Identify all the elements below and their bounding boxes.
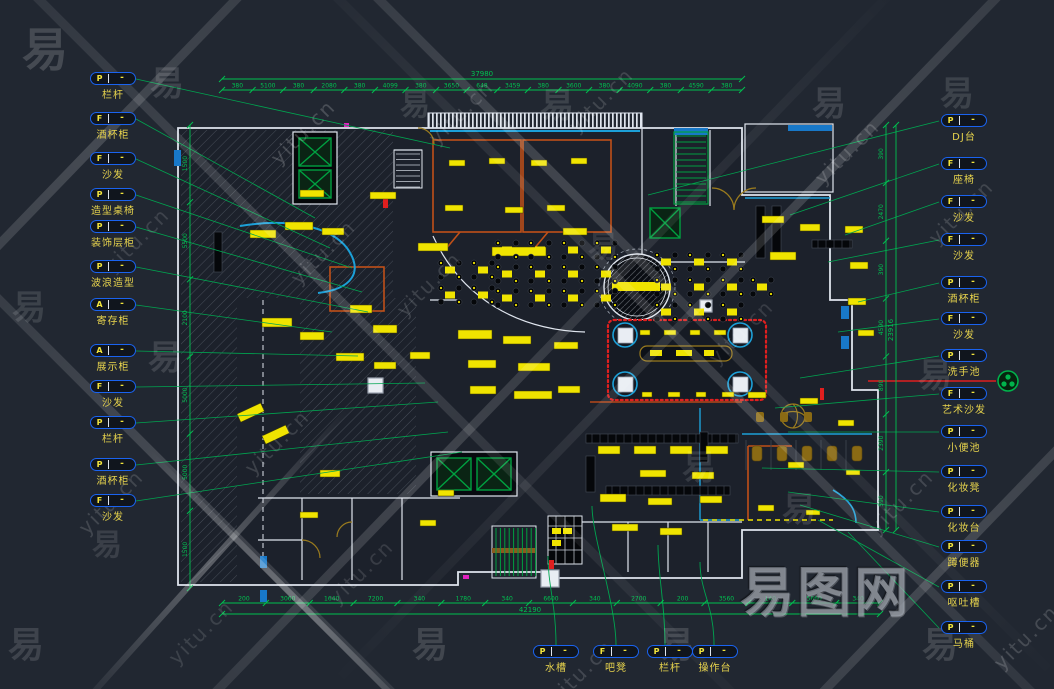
callout-letter: P — [91, 74, 108, 84]
callout-value: - — [960, 314, 986, 323]
dimension-text: 3650 — [444, 83, 459, 90]
callout-letter: P — [942, 278, 959, 288]
callout: F-座椅 — [941, 157, 1001, 186]
callout-label: 座椅 — [941, 171, 987, 186]
dimension-text: 890 — [878, 379, 885, 391]
dimension-text: 4090 — [627, 83, 642, 90]
callout-label: 酒杯柜 — [941, 290, 987, 305]
callout-label: 吧凳 — [593, 659, 639, 674]
callout-letter: F — [594, 647, 611, 657]
dimension-text: 380 — [354, 83, 366, 90]
callout-value: - — [666, 647, 692, 656]
dimension-text: 390 — [878, 148, 885, 160]
callout-letter: P — [942, 467, 959, 477]
callout-label: 化妆台 — [941, 519, 987, 534]
callout-value: - — [960, 235, 986, 244]
callout-letter: P — [91, 262, 108, 272]
dimension-text: 7200 — [368, 596, 383, 603]
callout-letter: F — [91, 496, 108, 506]
callout-label: 栏杆 — [90, 430, 136, 445]
callout-value: - — [960, 507, 986, 516]
callout-label: 马桶 — [941, 635, 987, 650]
callout-label: 展示柜 — [90, 358, 136, 373]
callout-value: - — [109, 154, 135, 163]
dimension-text: 1500 — [182, 156, 189, 171]
callout-letter: P — [91, 222, 108, 232]
callout-value: - — [960, 623, 986, 632]
callout-letter: P — [942, 427, 959, 437]
callout-letter: A — [91, 300, 108, 310]
callout-label: 化妆凳 — [941, 479, 987, 494]
dimension-text: 5100 — [260, 83, 275, 90]
callout-tag: P- — [692, 645, 738, 658]
callout-tag: F- — [941, 387, 987, 400]
callout-value: - — [109, 496, 135, 505]
callout-label: 洗手池 — [941, 363, 987, 378]
callout: F-沙发 — [941, 312, 1001, 341]
callout: P-化妆台 — [941, 505, 1001, 534]
callout: P-栏杆 — [90, 416, 150, 445]
callout-value: - — [960, 467, 986, 476]
dimension-text: 590 — [878, 495, 885, 507]
callout-label: 沙发 — [90, 166, 136, 181]
callout: A-展示柜 — [90, 344, 150, 373]
callout-letter: F — [91, 154, 108, 164]
callout-tag: F- — [593, 645, 639, 658]
callout-tag: P- — [941, 540, 987, 553]
callout-tag: F- — [90, 112, 136, 125]
dimension-text: 340 — [501, 596, 513, 603]
callout: P-蹲便器 — [941, 540, 1001, 569]
callout-label: 操作台 — [692, 659, 738, 674]
service-shaft — [548, 516, 582, 564]
callout-label: 酒杯柜 — [90, 126, 136, 141]
callout-tag: F- — [90, 152, 136, 165]
dimension-text: 3560 — [719, 596, 734, 603]
dimension-text: 380 — [293, 83, 305, 90]
callout-letter: P — [942, 582, 959, 592]
callout-letter: F — [942, 389, 959, 399]
callout-tag: P- — [90, 416, 136, 429]
vip-zone — [608, 320, 766, 400]
callout-label: 波浪造型 — [90, 274, 136, 289]
dimension-text: 380 — [537, 83, 549, 90]
callout-value: - — [960, 278, 986, 287]
callout-label: 蹲便器 — [941, 554, 987, 569]
watermark-logo: 易图网 — [740, 548, 911, 627]
callout-letter: P — [91, 418, 108, 428]
callout: F-沙发 — [941, 195, 1001, 224]
dimension-text: 4590 — [688, 83, 703, 90]
callout-value: - — [109, 74, 135, 83]
dimension-text: 5000 — [182, 387, 189, 402]
callout-letter: P — [693, 647, 710, 657]
callout-value: - — [960, 116, 986, 125]
callout-value: - — [109, 460, 135, 469]
callout-tag: P- — [90, 260, 136, 273]
callout-label: 沙发 — [90, 394, 136, 409]
callout-tag: F- — [941, 312, 987, 325]
callout-letter: P — [648, 647, 665, 657]
callout: F-沙发 — [90, 152, 150, 181]
callout-value: - — [109, 190, 135, 199]
callout-letter: P — [942, 116, 959, 126]
callout: P-酒杯柜 — [941, 276, 1001, 305]
callout-value: - — [109, 346, 135, 355]
building-shell — [178, 113, 878, 585]
callout: A-寄存柜 — [90, 298, 150, 327]
callout-value: - — [960, 542, 986, 551]
dimension-text: 2390 — [878, 435, 885, 450]
callout-tag: F- — [90, 380, 136, 393]
callout-letter: P — [91, 460, 108, 470]
callout: P-DJ台 — [941, 114, 1001, 143]
callout-label: 栏杆 — [647, 659, 693, 674]
callout-letter: A — [91, 346, 108, 356]
callout-tag: P- — [941, 505, 987, 518]
dimension-text: 340 — [414, 596, 426, 603]
callout-tag: A- — [90, 298, 136, 311]
dimension-text: 380 — [660, 83, 672, 90]
callout-letter: P — [942, 351, 959, 361]
dimension-text: 5500 — [182, 233, 189, 248]
callout-letter: F — [942, 235, 959, 245]
dimension-text: 5000 — [182, 464, 189, 479]
callout: F-沙发 — [90, 380, 150, 409]
callout-tag: F- — [90, 494, 136, 507]
dimension-text: 3459 — [505, 83, 520, 90]
callout-value: - — [960, 197, 986, 206]
callout-value: - — [960, 427, 986, 436]
dimension-overall: 42190 — [519, 606, 541, 614]
callout: P-洗手池 — [941, 349, 1001, 378]
callout-letter: P — [942, 542, 959, 552]
dimension-text: 648 — [476, 83, 488, 90]
callout-value: - — [109, 300, 135, 309]
callout-tag: P- — [90, 188, 136, 201]
dimension-text: 390 — [878, 264, 885, 276]
callout: P-酒杯柜 — [90, 458, 150, 487]
dimension-text: 2080 — [321, 83, 336, 90]
dimension-text: 380 — [721, 83, 733, 90]
dimension-text: 1640 — [324, 596, 339, 603]
callout-letter: P — [534, 647, 551, 657]
dimension-text: 2470 — [878, 204, 885, 219]
callout-value: - — [960, 159, 986, 168]
callout: F-沙发 — [941, 233, 1001, 262]
dimension-text: 4099 — [383, 83, 398, 90]
callout-tag: P- — [941, 425, 987, 438]
callout-tag: P- — [90, 220, 136, 233]
callout-letter: P — [91, 190, 108, 200]
callout-tag: P- — [941, 465, 987, 478]
callout-letter: F — [91, 382, 108, 392]
callout-letter: P — [942, 623, 959, 633]
callout: P-波浪造型 — [90, 260, 150, 289]
hatched-area — [181, 130, 393, 298]
dimension-overall: 23916 — [887, 318, 895, 341]
callout-label: 造型桌椅 — [90, 202, 136, 217]
callout-letter: F — [942, 314, 959, 324]
callout-tag: F- — [941, 157, 987, 170]
callout: P-马桶 — [941, 621, 1001, 650]
callout-tag: P- — [90, 458, 136, 471]
dimension-text: 380 — [599, 83, 611, 90]
callout: P-装饰层柜 — [90, 220, 150, 249]
callout-value: - — [109, 222, 135, 231]
callout-tag: P- — [941, 114, 987, 127]
callout: F-艺术沙发 — [941, 387, 1001, 416]
callout-label: 装饰层柜 — [90, 234, 136, 249]
callout: P-操作台 — [692, 645, 752, 674]
callout-value: - — [109, 418, 135, 427]
callout: P-水槽 — [533, 645, 593, 674]
detail-marker-icon — [998, 371, 1018, 391]
callout-value: - — [109, 262, 135, 271]
callout-letter: F — [942, 197, 959, 207]
callout-label: 沙发 — [941, 326, 987, 341]
dimension-text: 2700 — [631, 596, 646, 603]
callout: P-化妆凳 — [941, 465, 1001, 494]
callout: F-酒杯柜 — [90, 112, 150, 141]
callout-tag: F- — [941, 233, 987, 246]
callout-label: DJ台 — [941, 128, 987, 143]
dimension-text: 3600 — [566, 83, 581, 90]
callout-value: - — [960, 351, 986, 360]
dimension-text: 1780 — [456, 596, 471, 603]
callout-value: - — [109, 382, 135, 391]
callout-letter: F — [942, 159, 959, 169]
dimension-text: 340 — [589, 596, 601, 603]
dimension-overall: 37980 — [471, 70, 493, 78]
callout-value: - — [109, 114, 135, 123]
callout-value: - — [612, 647, 638, 656]
callout-label: 沙发 — [90, 508, 136, 523]
callout-label: 呕吐槽 — [941, 594, 987, 609]
callout-letter: P — [942, 507, 959, 517]
callout-label: 栏杆 — [90, 86, 136, 101]
dimension-text: 380 — [232, 83, 244, 90]
callout-value: - — [711, 647, 737, 656]
callout-label: 寄存柜 — [90, 312, 136, 327]
callout-label: 水槽 — [533, 659, 579, 674]
callout-tag: P- — [647, 645, 693, 658]
callout-label: 小便池 — [941, 439, 987, 454]
callout-tag: P- — [941, 621, 987, 634]
callout-tag: P- — [941, 580, 987, 593]
stage-wall-hatch — [428, 113, 642, 128]
dimension-text: 1500 — [182, 542, 189, 557]
callout: F-吧凳 — [593, 645, 653, 674]
callout-label: 酒杯柜 — [90, 472, 136, 487]
callout-label: 沙发 — [941, 247, 987, 262]
callout: P-呕吐槽 — [941, 580, 1001, 609]
callout-tag: A- — [90, 344, 136, 357]
callout-letter: F — [91, 114, 108, 124]
callout: P-栏杆 — [90, 72, 150, 101]
dimension-text: 4590 — [878, 320, 885, 335]
callout-label: 艺术沙发 — [941, 401, 987, 416]
callout-tag: P- — [941, 276, 987, 289]
callout-value: - — [960, 582, 986, 591]
callout-tag: P- — [533, 645, 579, 658]
callout: F-沙发 — [90, 494, 150, 523]
dimension-text: 2100 — [182, 310, 189, 325]
dimension-text: 3060 — [280, 596, 295, 603]
dimension-text: 200 — [677, 596, 689, 603]
callout-tag: P- — [90, 72, 136, 85]
cad-floorplan-preview: 3805100380208038040993803650648345938036… — [0, 0, 1054, 689]
callout: P-造型桌椅 — [90, 188, 150, 217]
callout-value: - — [552, 647, 578, 656]
callout: P-小便池 — [941, 425, 1001, 454]
dimension-text: 200 — [238, 596, 250, 603]
callout-label: 沙发 — [941, 209, 987, 224]
dimension-text: 6600 — [543, 596, 558, 603]
callout-tag: P- — [941, 349, 987, 362]
dimension-text: 380 — [415, 83, 427, 90]
callout-value: - — [960, 389, 986, 398]
callout-tag: F- — [941, 195, 987, 208]
